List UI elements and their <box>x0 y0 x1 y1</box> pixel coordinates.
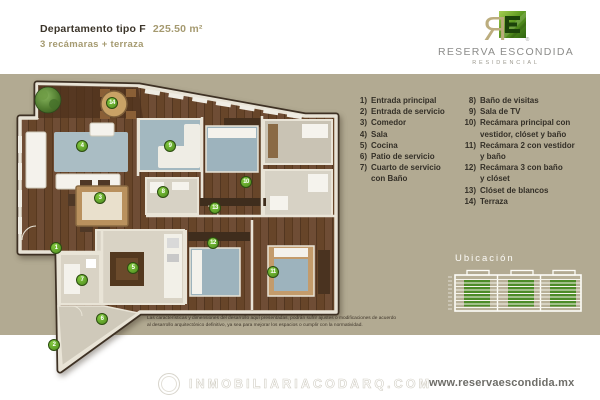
disclaimer-text: Las características y dimensiones del de… <box>147 315 415 329</box>
plan-room-badge: 2 <box>48 339 60 351</box>
ubicacion-section: Ubicación <box>446 253 582 318</box>
legend-item-number: 9) <box>456 106 476 117</box>
legend-item-label: Cocina <box>371 140 398 151</box>
legend-item-number: 12) <box>456 162 476 184</box>
legend-item-label: Cuarto de servicio con Baño <box>371 162 441 184</box>
legend-item-number: 4) <box>347 129 367 140</box>
plan-room-badge: 13 <box>209 202 221 214</box>
legend-item-number: 6) <box>347 151 367 162</box>
brand-logo: R ® RESERVA ESCONDIDA RESIDENCIAL <box>438 7 574 66</box>
legend-item-number: 11) <box>456 140 476 162</box>
legend-item: 3)Comedor <box>347 117 455 128</box>
page-title: Departamento tipo F225.50 m² <box>40 23 203 35</box>
legend-item-label: Terraza <box>480 196 508 207</box>
legend-item: 1)Entrada principal <box>347 95 455 106</box>
legend-item: 7)Cuarto de servicio con Baño <box>347 162 455 184</box>
watermark-text: INMOBILIARIACODARQ.COM <box>189 377 432 391</box>
legend-column-2: 8)Baño de visitas9)Sala de TV10)Recámara… <box>456 95 598 207</box>
legend-item: 4)Sala <box>347 129 455 140</box>
plan-room-badge: 12 <box>207 237 219 249</box>
brand-tagline: RESIDENCIAL <box>438 60 574 66</box>
legend-item: 5)Cocina <box>347 140 455 151</box>
building-location-diagram <box>446 269 582 313</box>
legend-item: 8)Baño de visitas <box>456 95 598 106</box>
footer: INMOBILIARIACODARQ.COM <box>158 371 432 397</box>
legend-item: 12)Recámara 3 con baño y clóset <box>456 162 598 184</box>
legend-item: 14)Terraza <box>456 196 598 207</box>
legend-item: 2)Entrada de servicio <box>347 106 455 117</box>
legend-item-number: 13) <box>456 185 476 196</box>
legend-item-label: Entrada principal <box>371 95 436 106</box>
registered-mark: ® <box>526 37 530 43</box>
logo-mark-icon: R ® <box>438 7 574 43</box>
apartment-type-title: Departamento tipo F <box>40 23 146 35</box>
legend-item: 11)Recámara 2 con vestidor y baño <box>456 140 598 162</box>
legend-item-number: 2) <box>347 106 367 117</box>
legend-item: 10)Recámara principal con vestidor, clós… <box>456 117 598 139</box>
plan-room-badge: 3 <box>94 192 106 204</box>
plan-room-badge: 9 <box>164 140 176 152</box>
plan-room-badge: 6 <box>96 313 108 325</box>
title-block: Departamento tipo F225.50 m² 3 recámaras… <box>40 23 203 50</box>
legend-item-label: Recámara 3 con baño y clóset <box>480 162 563 184</box>
legend-item-number: 3) <box>347 117 367 128</box>
legend-column-1: 1)Entrada principal2)Entrada de servicio… <box>347 95 455 185</box>
watermark-logo-icon <box>158 373 180 395</box>
legend-item-label: Recámara principal con vestidor, clóset … <box>480 117 570 139</box>
ubicacion-title: Ubicación <box>455 253 582 264</box>
floor-plan-drawing <box>12 80 344 382</box>
plan-room-badge: 1 <box>50 242 62 254</box>
legend-item-number: 5) <box>347 140 367 151</box>
legend-item-label: Baño de visitas <box>480 95 539 106</box>
legend-item-label: Recámara 2 con vestidor y baño <box>480 140 575 162</box>
legend-item-number: 14) <box>456 196 476 207</box>
legend-item-number: 7) <box>347 162 367 184</box>
legend-item-label: Comedor <box>371 117 406 128</box>
legend-item-number: 10) <box>456 117 476 139</box>
legend-item-label: Patio de servicio <box>371 151 435 162</box>
plan-room-badge: 8 <box>157 186 169 198</box>
legend-item: 6)Patio de servicio <box>347 151 455 162</box>
legend-item: 9)Sala de TV <box>456 106 598 117</box>
brand-name: RESERVA ESCONDIDA <box>438 46 574 58</box>
floor-plan: 1234567891011121314 <box>12 80 344 382</box>
legend-item-label: Clóset de blancos <box>480 185 548 196</box>
plan-room-badge: 5 <box>127 262 139 274</box>
website-url[interactable]: www.reservaescondida.mx <box>429 377 574 389</box>
legend-item-label: Sala de TV <box>480 106 520 117</box>
plan-room-badge: 11 <box>267 266 279 278</box>
plan-room-badge: 10 <box>240 176 252 188</box>
apartment-area: 225.50 m² <box>153 23 203 35</box>
plan-room-badge: 14 <box>106 97 118 109</box>
legend-item-label: Sala <box>371 129 387 140</box>
logo-mirrored-r-icon: R <box>483 14 507 43</box>
plan-room-badge: 7 <box>76 274 88 286</box>
apartment-subtitle: 3 recámaras + terraza <box>40 39 203 50</box>
plan-room-badge: 4 <box>76 140 88 152</box>
legend-item: 13)Clóset de blancos <box>456 185 598 196</box>
legend-item-label: Entrada de servicio <box>371 106 445 117</box>
legend-item-number: 1) <box>347 95 367 106</box>
legend-item-number: 8) <box>456 95 476 106</box>
